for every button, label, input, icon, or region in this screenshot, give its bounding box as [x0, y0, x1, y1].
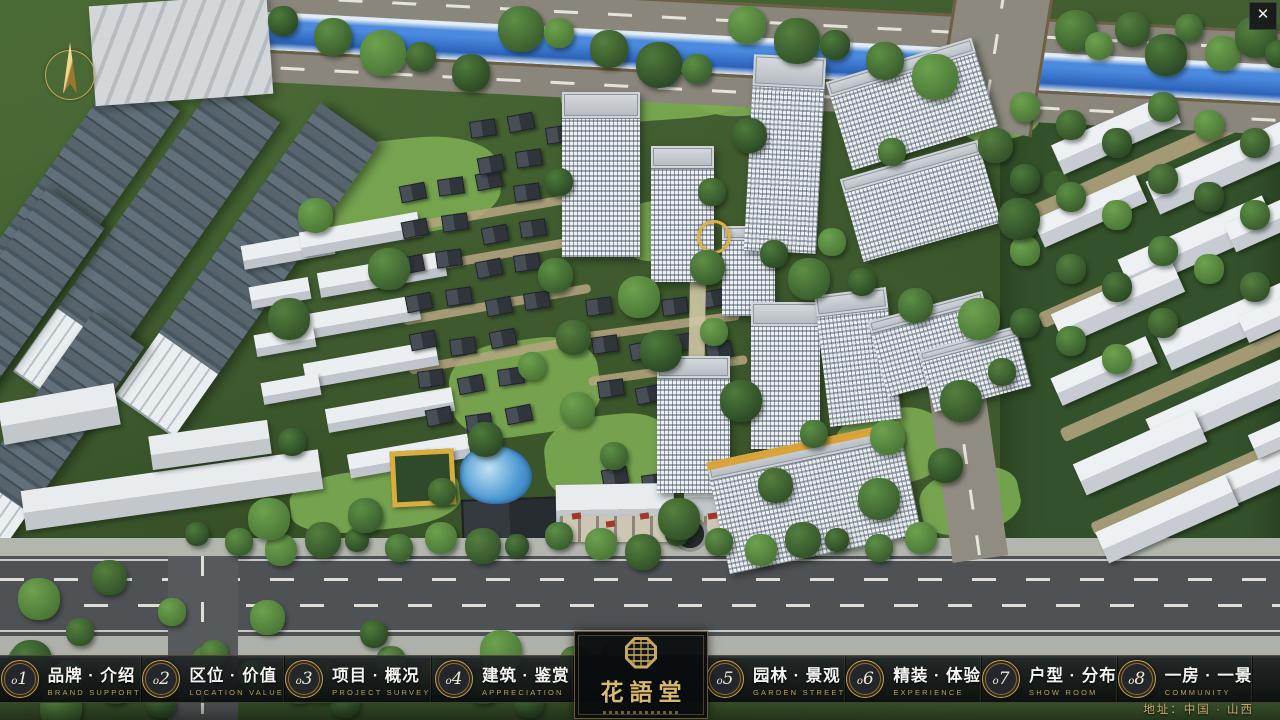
tree	[406, 42, 436, 72]
project-address-text: 地址：中国 · 山西	[1143, 701, 1254, 717]
nav-item-garden-landscape[interactable]: o5 园林 · 景观GARDEN STREET	[706, 656, 846, 702]
nav-number-badge: o7	[982, 660, 1020, 698]
nav-bar-right-edge	[1244, 656, 1280, 702]
nav-number: o7	[993, 671, 1010, 688]
nav-label-en: EXPERIENCE	[893, 688, 963, 697]
tree	[348, 498, 383, 533]
tower-roof	[562, 92, 640, 119]
villa	[523, 290, 551, 310]
tree	[720, 380, 762, 422]
close-icon[interactable]: ✕	[1249, 2, 1277, 30]
tree	[1010, 164, 1040, 194]
redbit	[708, 512, 718, 519]
nav-number-badge: o2	[142, 660, 180, 698]
tree	[1010, 236, 1040, 266]
villa	[585, 296, 613, 316]
crow	[261, 373, 322, 405]
nav-number-badge: o5	[706, 660, 744, 698]
tree	[1240, 128, 1270, 158]
nav-label-en: APPRECIATION	[482, 688, 564, 697]
nav-item-brand-intro[interactable]: o1 品牌 · 介绍BRAND SUPPORT	[0, 656, 142, 702]
nav-number: o8	[1128, 671, 1145, 688]
tree	[1194, 254, 1224, 284]
villa	[445, 286, 473, 306]
tree	[958, 298, 1000, 340]
tree	[556, 320, 591, 355]
tree	[225, 528, 253, 556]
redbit	[572, 512, 582, 519]
tree	[1240, 272, 1270, 302]
nav-item-room-view[interactable]: o8 一房 · 一景COMMUNITY	[1118, 656, 1254, 702]
tree	[636, 42, 682, 88]
seal-emblem-icon	[625, 637, 657, 669]
tree	[658, 498, 700, 540]
tree	[928, 448, 963, 483]
villa	[507, 112, 536, 134]
tree	[18, 578, 60, 620]
nav-number: o3	[296, 671, 313, 688]
tree	[898, 288, 933, 323]
goldring	[697, 220, 731, 254]
presentation-window: ✕ o1 品牌 · 介绍BRAND SUPPORT o2 区位 · 价值LOCA…	[0, 0, 1280, 720]
tree	[538, 258, 573, 293]
nav-group-left: o1 品牌 · 介绍BRAND SUPPORT o2 区位 · 价值LOCATI…	[0, 656, 574, 702]
nav-item-project-overview[interactable]: o3 项目 · 概况PROJECT SURVEY	[285, 656, 431, 702]
tree	[998, 198, 1040, 240]
project-logo-panel[interactable]: 花語堂	[574, 631, 708, 719]
tree	[545, 168, 573, 196]
villa	[597, 378, 625, 398]
nav-label-zh: 项目 · 概况	[332, 662, 420, 686]
tree	[1056, 182, 1086, 212]
nav-number: o2	[153, 671, 170, 688]
tree	[705, 528, 733, 556]
villa	[405, 292, 434, 314]
tree	[1194, 182, 1224, 212]
project-logo-title: 花語堂	[601, 673, 688, 707]
nav-item-location-value[interactable]: o2 区位 · 价值LOCATION VALUE	[142, 656, 285, 702]
nav-label-zh: 户型 · 分布	[1029, 662, 1117, 686]
nav-label-zh: 一房 · 一景	[1165, 662, 1253, 686]
tree	[848, 268, 876, 296]
tree	[1102, 200, 1132, 230]
tree	[585, 528, 617, 560]
tree	[278, 428, 306, 456]
tree	[385, 534, 413, 562]
tree	[758, 468, 793, 503]
tree	[560, 392, 595, 427]
villa	[515, 148, 543, 168]
tree	[640, 330, 682, 372]
tree	[544, 18, 574, 48]
tower	[562, 92, 640, 257]
tree	[698, 178, 726, 206]
tree	[425, 522, 457, 554]
tree	[820, 30, 850, 60]
tree	[785, 522, 821, 558]
nav-item-interior-experience[interactable]: o6 精装 · 体验EXPERIENCE	[846, 656, 982, 702]
villa	[425, 406, 454, 428]
tree	[452, 54, 490, 92]
nav-label-en: BRAND SUPPORT	[48, 688, 141, 697]
tree	[1085, 32, 1113, 60]
tree	[1115, 12, 1150, 47]
nav-label-en: GARDEN STREET	[753, 688, 845, 697]
nav-label-en: LOCATION VALUE	[189, 688, 284, 697]
tree	[700, 318, 728, 346]
compass-icon	[43, 40, 97, 102]
tree	[1194, 110, 1224, 140]
tree	[92, 560, 127, 595]
tree	[268, 6, 298, 36]
nav-label-zh: 品牌 · 介绍	[48, 662, 136, 686]
tree	[788, 258, 830, 300]
logo-subtitle-strip	[603, 711, 679, 714]
tree	[1102, 272, 1132, 302]
villa	[441, 212, 469, 232]
tree	[314, 18, 352, 56]
tree	[1102, 344, 1132, 374]
tree	[368, 248, 410, 290]
redbit	[606, 520, 616, 527]
tree	[428, 478, 456, 506]
villa	[449, 336, 477, 356]
villa	[475, 258, 504, 280]
tree	[818, 228, 846, 256]
nav-number-badge: o1	[1, 660, 39, 698]
nav-group-right: o5 园林 · 景观GARDEN STREET o6 精装 · 体验EXPERI…	[706, 656, 1244, 702]
nav-label-zh: 建筑 · 鉴赏	[482, 662, 570, 686]
tree	[600, 442, 628, 470]
tree	[268, 298, 310, 340]
villa	[661, 296, 689, 316]
nav-number: o6	[857, 671, 874, 688]
villa	[477, 154, 506, 176]
nav-label-en: PROJECT SURVEY	[332, 688, 430, 697]
tree	[545, 522, 573, 550]
tree	[988, 358, 1016, 386]
tree	[865, 534, 893, 562]
nav-number: o4	[445, 671, 462, 688]
nav-number: o1	[11, 671, 28, 688]
tree	[1148, 308, 1178, 338]
tree	[1010, 308, 1040, 338]
nav-label-zh: 园林 · 景观	[753, 662, 841, 686]
tree	[745, 534, 777, 566]
tower-roof	[751, 302, 820, 327]
tree	[912, 54, 958, 100]
villa	[435, 248, 463, 268]
tree	[1056, 326, 1086, 356]
tree	[305, 522, 341, 558]
villa	[513, 182, 541, 202]
villa	[469, 118, 497, 138]
tree	[760, 240, 788, 268]
tree	[518, 352, 546, 380]
tree	[1148, 236, 1178, 266]
nav-label-zh: 精装 · 体验	[893, 662, 981, 686]
villa	[481, 224, 510, 246]
redbit	[640, 512, 650, 519]
nav-label-en: SHOW ROOM	[1029, 688, 1098, 697]
bigblock	[89, 0, 274, 106]
tree	[360, 620, 388, 648]
nav-number-badge: o8	[1118, 660, 1156, 698]
tree	[728, 6, 766, 44]
tree	[618, 276, 660, 318]
tree	[505, 534, 529, 558]
tree	[1010, 92, 1040, 122]
pool	[460, 446, 532, 504]
nav-number-badge: o4	[435, 660, 473, 698]
tree	[878, 138, 906, 166]
nav-number-badge: o3	[285, 660, 323, 698]
tower-roof	[651, 146, 714, 169]
tree	[978, 128, 1013, 163]
villa	[591, 334, 619, 354]
nav-number-badge: o6	[846, 660, 884, 698]
tree	[905, 522, 937, 554]
tree	[1056, 110, 1086, 140]
tree	[682, 54, 712, 84]
tree	[1148, 164, 1178, 194]
tree	[858, 478, 900, 520]
tree	[625, 534, 661, 570]
nav-item-architecture-appreciation[interactable]: o4 建筑 · 鉴赏APPRECIATION	[432, 656, 574, 702]
tree	[298, 198, 333, 233]
tree	[1102, 128, 1132, 158]
nav-number: o5	[717, 671, 734, 688]
tree	[248, 498, 290, 540]
villa	[401, 218, 430, 240]
tree	[940, 380, 982, 422]
villa	[485, 296, 514, 318]
tree	[732, 118, 767, 153]
tree	[498, 6, 544, 52]
tree	[1175, 14, 1203, 42]
villa	[513, 252, 541, 272]
tree	[1240, 200, 1270, 230]
tree	[866, 42, 904, 80]
tree	[66, 618, 94, 646]
tree	[774, 18, 820, 64]
villa	[417, 368, 445, 388]
tree	[690, 250, 725, 285]
nav-label-zh: 区位 · 价值	[189, 662, 277, 686]
tower	[744, 54, 826, 253]
tree	[1148, 92, 1178, 122]
villa	[519, 218, 547, 238]
tree	[250, 600, 285, 635]
nav-label-en: COMMUNITY	[1165, 688, 1231, 697]
tree	[800, 420, 828, 448]
aerial-masterplan-render	[0, 0, 1280, 720]
tree	[185, 522, 209, 546]
tree	[360, 30, 406, 76]
tree	[158, 598, 186, 626]
villa	[437, 176, 465, 196]
nav-item-floorplan-distribution[interactable]: o7 户型 · 分布SHOW ROOM	[982, 656, 1118, 702]
tree	[870, 420, 905, 455]
tree	[825, 528, 849, 552]
tree	[1056, 254, 1086, 284]
tree	[468, 422, 503, 457]
tree	[465, 528, 501, 564]
tree	[590, 30, 628, 68]
seal-emblem-core	[628, 640, 654, 666]
